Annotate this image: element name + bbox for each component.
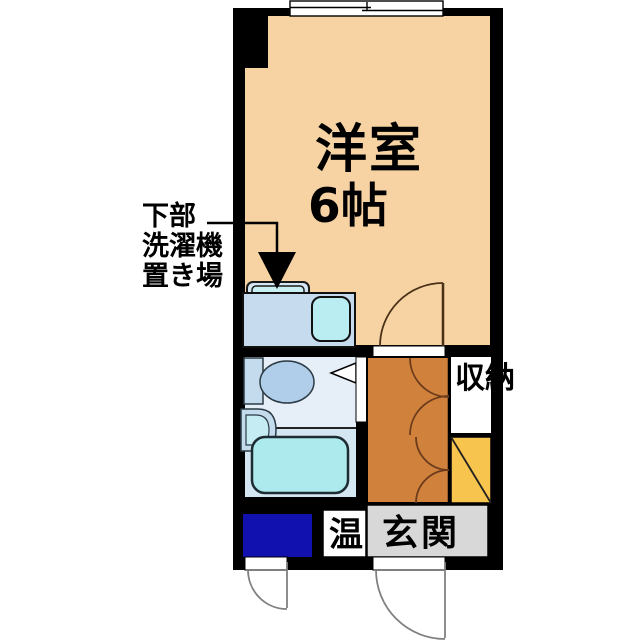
washer-note: 下部 洗濯機 置き場 <box>142 202 223 292</box>
washer-note-line2: 洗濯機 <box>142 232 223 262</box>
exterior-doors <box>248 562 445 639</box>
floorplan-drawing <box>0 0 640 640</box>
washer-note-line1: 下部 <box>142 202 223 232</box>
washer-note-line3: 置き場 <box>142 262 223 292</box>
hallway-floor <box>367 357 450 503</box>
toilet-bowl <box>260 361 314 403</box>
room-doorway-sill <box>373 346 445 357</box>
floorplan: 洋室 6帖 下部 洗濯機 置き場 収納 温 玄関 <box>0 0 640 640</box>
water-heater-label: 温 <box>329 518 363 552</box>
storage-label: 収納 <box>455 360 489 397</box>
window-icon <box>290 1 443 16</box>
entrance-label: 玄関 <box>382 516 460 552</box>
room-size-label: 6帖 <box>308 183 388 230</box>
doormat <box>242 513 313 558</box>
entrance-door-arc <box>376 570 445 639</box>
service-door-sill <box>245 557 287 570</box>
entrance-door-sill <box>373 557 445 570</box>
service-door-arc <box>248 570 287 609</box>
bathtub <box>252 437 348 493</box>
counter-sink <box>312 297 350 341</box>
room-name-label: 洋室 <box>315 124 423 176</box>
